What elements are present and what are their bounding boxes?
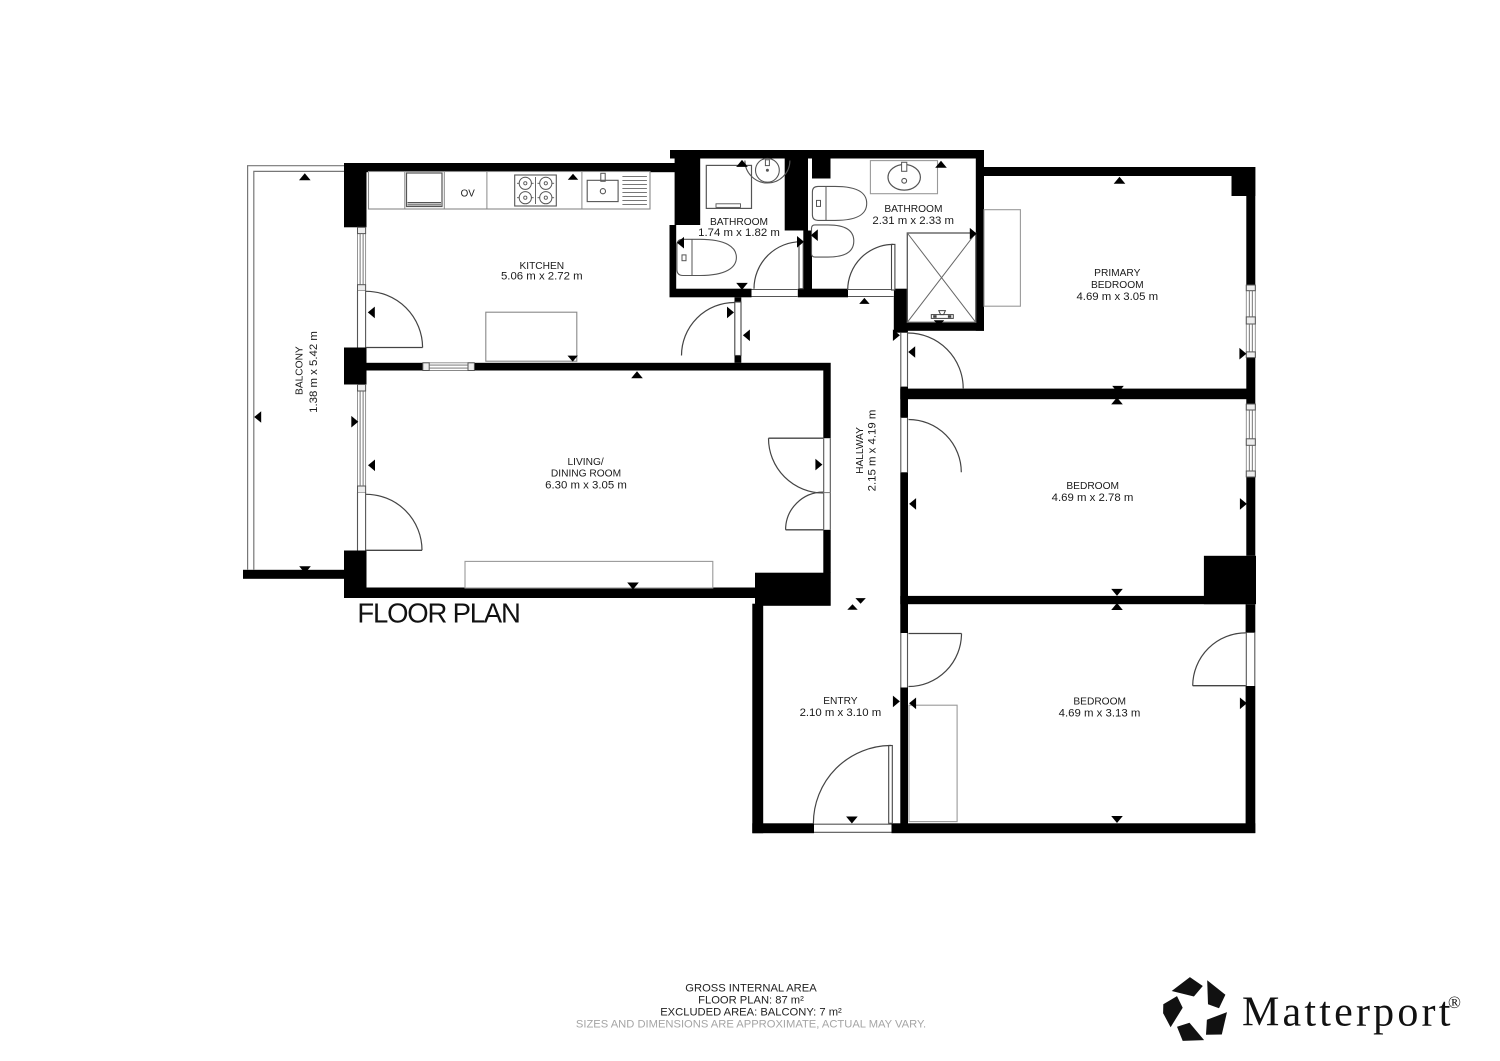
- svg-text:BEDROOM: BEDROOM: [1091, 280, 1144, 291]
- svg-text:PRIMARY: PRIMARY: [1094, 268, 1140, 279]
- svg-text:EXCLUDED AREA: BALCONY: 7 m²: EXCLUDED AREA: BALCONY: 7 m²: [660, 1007, 842, 1019]
- svg-text:6.30 m x 3.05 m: 6.30 m x 3.05 m: [545, 479, 627, 491]
- svg-text:®: ®: [1448, 993, 1461, 1012]
- svg-text:2.31 m x 2.33 m: 2.31 m x 2.33 m: [872, 215, 954, 227]
- svg-text:OV: OV: [461, 189, 476, 200]
- svg-text:1.74 m x 1.82 m: 1.74 m x 1.82 m: [698, 227, 780, 239]
- svg-text:5.06 m x 2.72 m: 5.06 m x 2.72 m: [501, 270, 583, 282]
- svg-text:Matterport: Matterport: [1242, 990, 1454, 1036]
- svg-text:HALLWAY: HALLWAY: [855, 427, 866, 474]
- svg-text:4.69 m x 3.13 m: 4.69 m x 3.13 m: [1059, 708, 1141, 720]
- svg-text:FLOOR PLAN: 87 m²: FLOOR PLAN: 87 m²: [698, 995, 804, 1007]
- svg-text:BATHROOM: BATHROOM: [884, 204, 942, 215]
- svg-text:BEDROOM: BEDROOM: [1066, 481, 1119, 492]
- svg-text:SIZES AND DIMENSIONS ARE APPRO: SIZES AND DIMENSIONS ARE APPROXIMATE, AC…: [576, 1019, 926, 1031]
- svg-text:LIVING/: LIVING/: [567, 457, 603, 468]
- svg-text:GROSS INTERNAL AREA: GROSS INTERNAL AREA: [685, 983, 817, 995]
- svg-text:4.69 m x 3.05 m: 4.69 m x 3.05 m: [1076, 291, 1158, 303]
- svg-text:4.69 m x 2.78 m: 4.69 m x 2.78 m: [1052, 492, 1134, 504]
- svg-text:BEDROOM: BEDROOM: [1073, 697, 1126, 708]
- svg-text:1.38 m x 5.42 m: 1.38 m x 5.42 m: [308, 331, 320, 413]
- svg-text:2.10 m x 3.10 m: 2.10 m x 3.10 m: [800, 707, 882, 719]
- svg-text:FLOOR PLAN: FLOOR PLAN: [357, 598, 519, 629]
- svg-text:DINING ROOM: DINING ROOM: [551, 468, 621, 479]
- svg-text:BALCONY: BALCONY: [294, 346, 305, 395]
- svg-text:ENTRY: ENTRY: [823, 696, 858, 707]
- svg-text:2.15 m x 4.19 m: 2.15 m x 4.19 m: [866, 410, 878, 492]
